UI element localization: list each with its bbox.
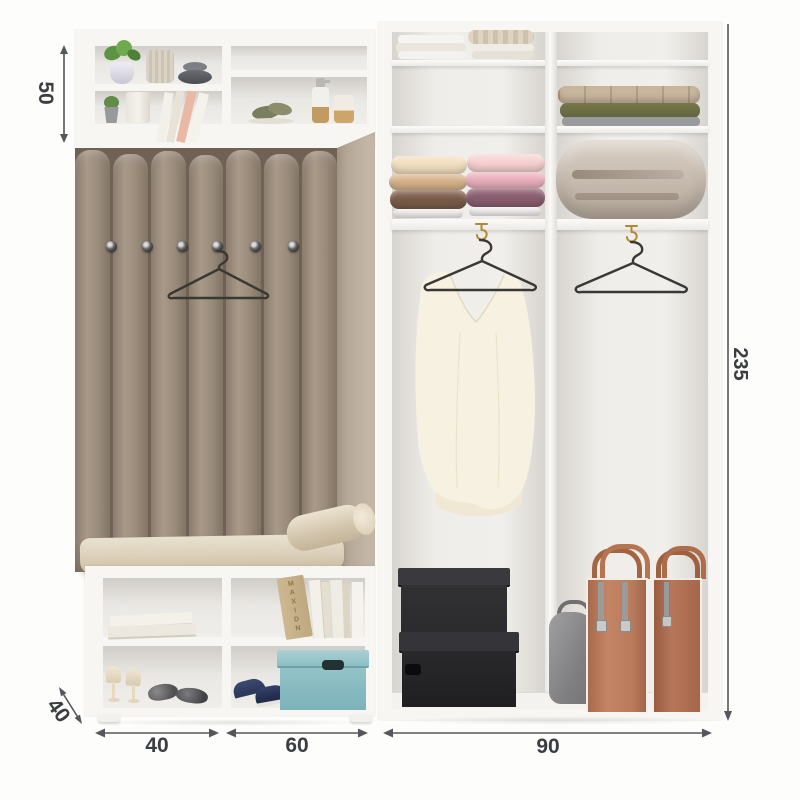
dimension-line-upper-shelf-height [55,44,73,144]
tote-strap-buckle [596,620,607,632]
tote-strap [598,582,604,624]
rolled-duvet [556,140,706,219]
wardrobe-compartment [392,66,545,126]
duvet-fold-shadow [575,193,679,200]
dimension-label-upper-shelf-height: 50 [34,76,56,110]
white-blouse [410,262,546,538]
folded-blanket-olive [560,103,700,118]
dimension-label-wardrobe-width: 90 [528,736,568,758]
wardrobe-center-divider [545,32,557,692]
cream-heel [125,668,141,686]
towel-mauve [466,188,545,207]
cream-heel-stem [112,682,115,699]
coat-hook-knob [288,241,299,252]
panel-channel [75,150,110,572]
tote-strap-buckle [662,616,672,627]
tote-handle [600,544,650,579]
book-spine-text: MAXIDN [287,580,303,638]
panel-channel [264,154,299,572]
tote-edge-piping [700,580,702,712]
dimension-label-total-height: 235 [729,341,751,387]
tote-strap-buckle [620,620,631,632]
decor-plate [248,118,294,124]
furniture-dimension-scene: MAXIDN [0,0,800,800]
coat-hook-knob [142,241,153,252]
black-box [402,651,516,707]
empty-wire-hanger [564,238,698,296]
book-spine [351,582,363,638]
wardrobe-compartment [557,32,708,60]
textured-vase [146,50,174,83]
tote-edge-piping [652,580,654,712]
plant-vase [110,62,134,84]
tote-strap [622,582,628,624]
folded-blanket-gray [562,117,700,126]
two-tone-jar [334,95,354,123]
towel-pink [465,172,545,188]
wire-hanger-on-panel [158,248,278,302]
tote-strap [664,582,669,620]
towel-cream [391,156,467,174]
floor-shadow [390,716,720,725]
tote-handle [662,546,706,579]
tote-bag [652,578,702,712]
towel-tan [389,174,467,190]
towel-brown [390,190,467,209]
black-box-lid [399,632,519,653]
tote-edge-piping [586,580,588,712]
knit-roll [468,30,534,44]
panel-channel [189,155,224,572]
floor-shadow [90,719,370,726]
towel-light-pink [467,154,545,172]
towel-white [393,209,463,218]
cream-heel-base [108,698,120,702]
folded-blanket-plaid [558,86,700,104]
cream-heel-base [128,699,140,703]
dimension-label-bench-width: 40 [137,735,177,757]
panel-channel [151,151,186,572]
gray-bowl [178,70,212,84]
black-box [401,585,507,637]
towel-white [469,207,541,216]
teal-box-handle-slot [322,660,344,670]
folded-linen [472,51,534,59]
dimension-label-shoe-cabinet-width: 60 [277,735,317,757]
tote-bag [586,578,648,712]
folded-linen [398,51,466,59]
soap-dispenser [312,87,329,123]
tote-edge-piping [646,580,648,712]
panel-channel [113,154,148,572]
soap-dispenser-spout [323,80,330,83]
black-box-handle-slot [405,664,421,675]
panel-channel [226,150,261,572]
teal-storage-box [280,668,366,710]
wire-hanger-with-blouse [414,236,546,294]
upholstered-panel [75,148,337,572]
shelf-cell-top-right [231,46,367,70]
cream-heel [106,666,121,683]
white-canister [126,92,150,123]
duvet-fold-shadow [572,170,684,179]
coat-hook-knob [106,241,117,252]
